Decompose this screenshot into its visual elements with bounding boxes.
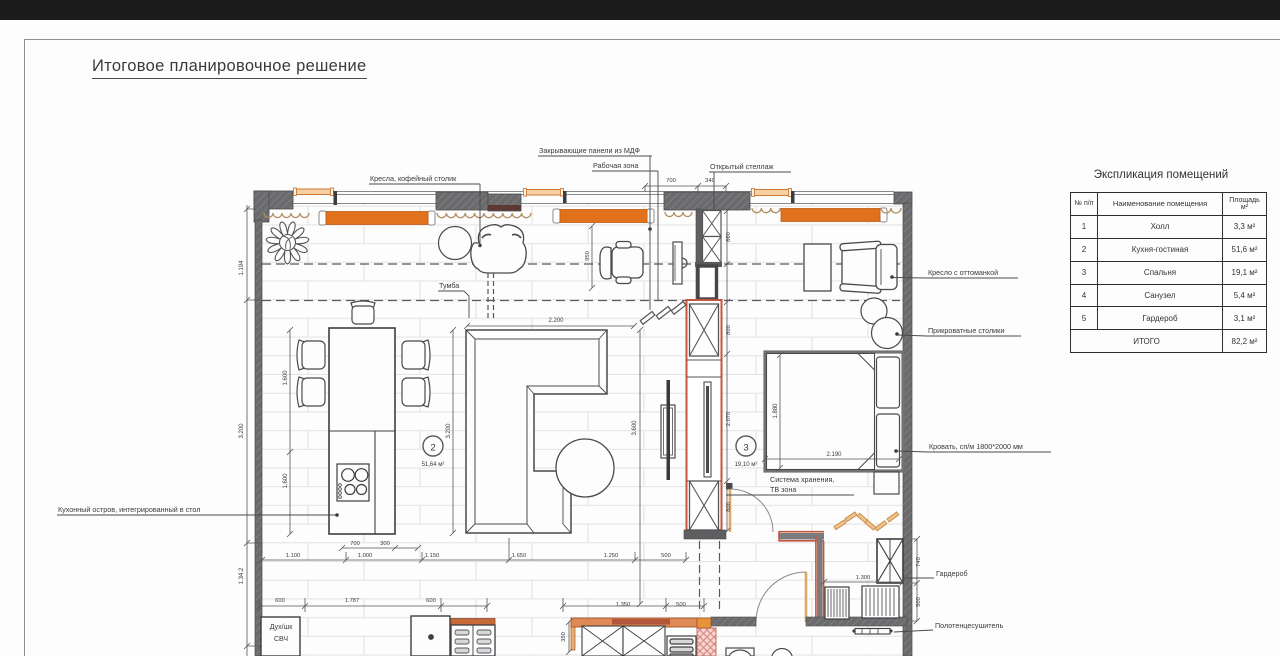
svg-text:1.300: 1.300 [856, 575, 871, 581]
svg-text:740: 740 [916, 557, 922, 567]
svg-text:Кухонный остров, интегрированн: Кухонный остров, интегрированный в стол [58, 505, 200, 514]
svg-text:3: 3 [743, 443, 748, 454]
svg-text:1.194: 1.194 [239, 260, 245, 276]
svg-text:Кровать, сп/м 1800*2000 мм: Кровать, сп/м 1800*2000 мм [929, 442, 1023, 451]
svg-text:Кресло с оттоманкой: Кресло с оттоманкой [928, 268, 998, 277]
svg-text:1.100: 1.100 [286, 553, 301, 559]
svg-text:Кресла, кофейный столик: Кресла, кофейный столик [370, 174, 457, 183]
svg-text:Дух/шк: Дух/шк [270, 624, 293, 631]
svg-text:700: 700 [350, 541, 360, 547]
svg-text:Система хранения,: Система хранения, [770, 475, 834, 484]
svg-text:3.200: 3.200 [239, 423, 245, 439]
svg-text:СВЧ: СВЧ [274, 636, 288, 643]
svg-text:Рабочая зона: Рабочая зона [593, 161, 638, 170]
svg-text:1.787: 1.787 [345, 598, 360, 604]
svg-text:600: 600 [426, 598, 436, 604]
svg-text:3.200: 3.200 [446, 423, 452, 439]
svg-text:ТВ зона: ТВ зона [770, 485, 796, 494]
svg-text:19,10 м²: 19,10 м² [735, 462, 758, 468]
svg-text:600: 600 [275, 598, 285, 604]
svg-text:340: 340 [705, 178, 715, 184]
svg-text:800: 800 [726, 325, 732, 335]
svg-text:860: 860 [726, 232, 732, 242]
svg-text:1.600: 1.600 [283, 370, 289, 386]
svg-text:Закрывающие панели из МДФ: Закрывающие панели из МДФ [539, 146, 641, 155]
svg-text:1.600: 1.600 [283, 473, 289, 489]
svg-text:Тумба: Тумба [439, 281, 459, 290]
svg-text:2.070: 2.070 [726, 412, 732, 427]
svg-text:1.000: 1.000 [358, 553, 373, 559]
svg-text:2: 2 [430, 443, 435, 454]
svg-text:500: 500 [676, 602, 686, 608]
svg-text:2.190: 2.190 [826, 452, 842, 458]
svg-text:51,64 м²: 51,64 м² [422, 462, 445, 468]
svg-text:Полотенцесушитель: Полотенцесушитель [935, 621, 1003, 630]
svg-text:3.600: 3.600 [632, 420, 638, 436]
svg-text:1.350: 1.350 [616, 602, 631, 608]
svg-text:1.880: 1.880 [773, 403, 779, 419]
svg-text:350: 350 [561, 632, 567, 642]
svg-text:500: 500 [661, 553, 671, 559]
svg-text:1.150: 1.150 [425, 553, 440, 559]
svg-text:2.200: 2.200 [548, 318, 564, 324]
svg-text:Прикроватные столики: Прикроватные столики [928, 326, 1004, 335]
svg-text:Гардероб: Гардероб [936, 569, 968, 578]
svg-text:800: 800 [726, 502, 732, 512]
svg-text:950: 950 [585, 251, 591, 261]
svg-text:500: 500 [916, 597, 922, 607]
svg-text:1.650: 1.650 [512, 553, 527, 559]
svg-text:1.250: 1.250 [604, 553, 619, 559]
svg-text:1.34.2: 1.34.2 [239, 567, 245, 584]
svg-text:700: 700 [666, 178, 676, 184]
svg-text:300: 300 [380, 541, 390, 547]
svg-text:Открытый стеллаж: Открытый стеллаж [710, 162, 774, 171]
